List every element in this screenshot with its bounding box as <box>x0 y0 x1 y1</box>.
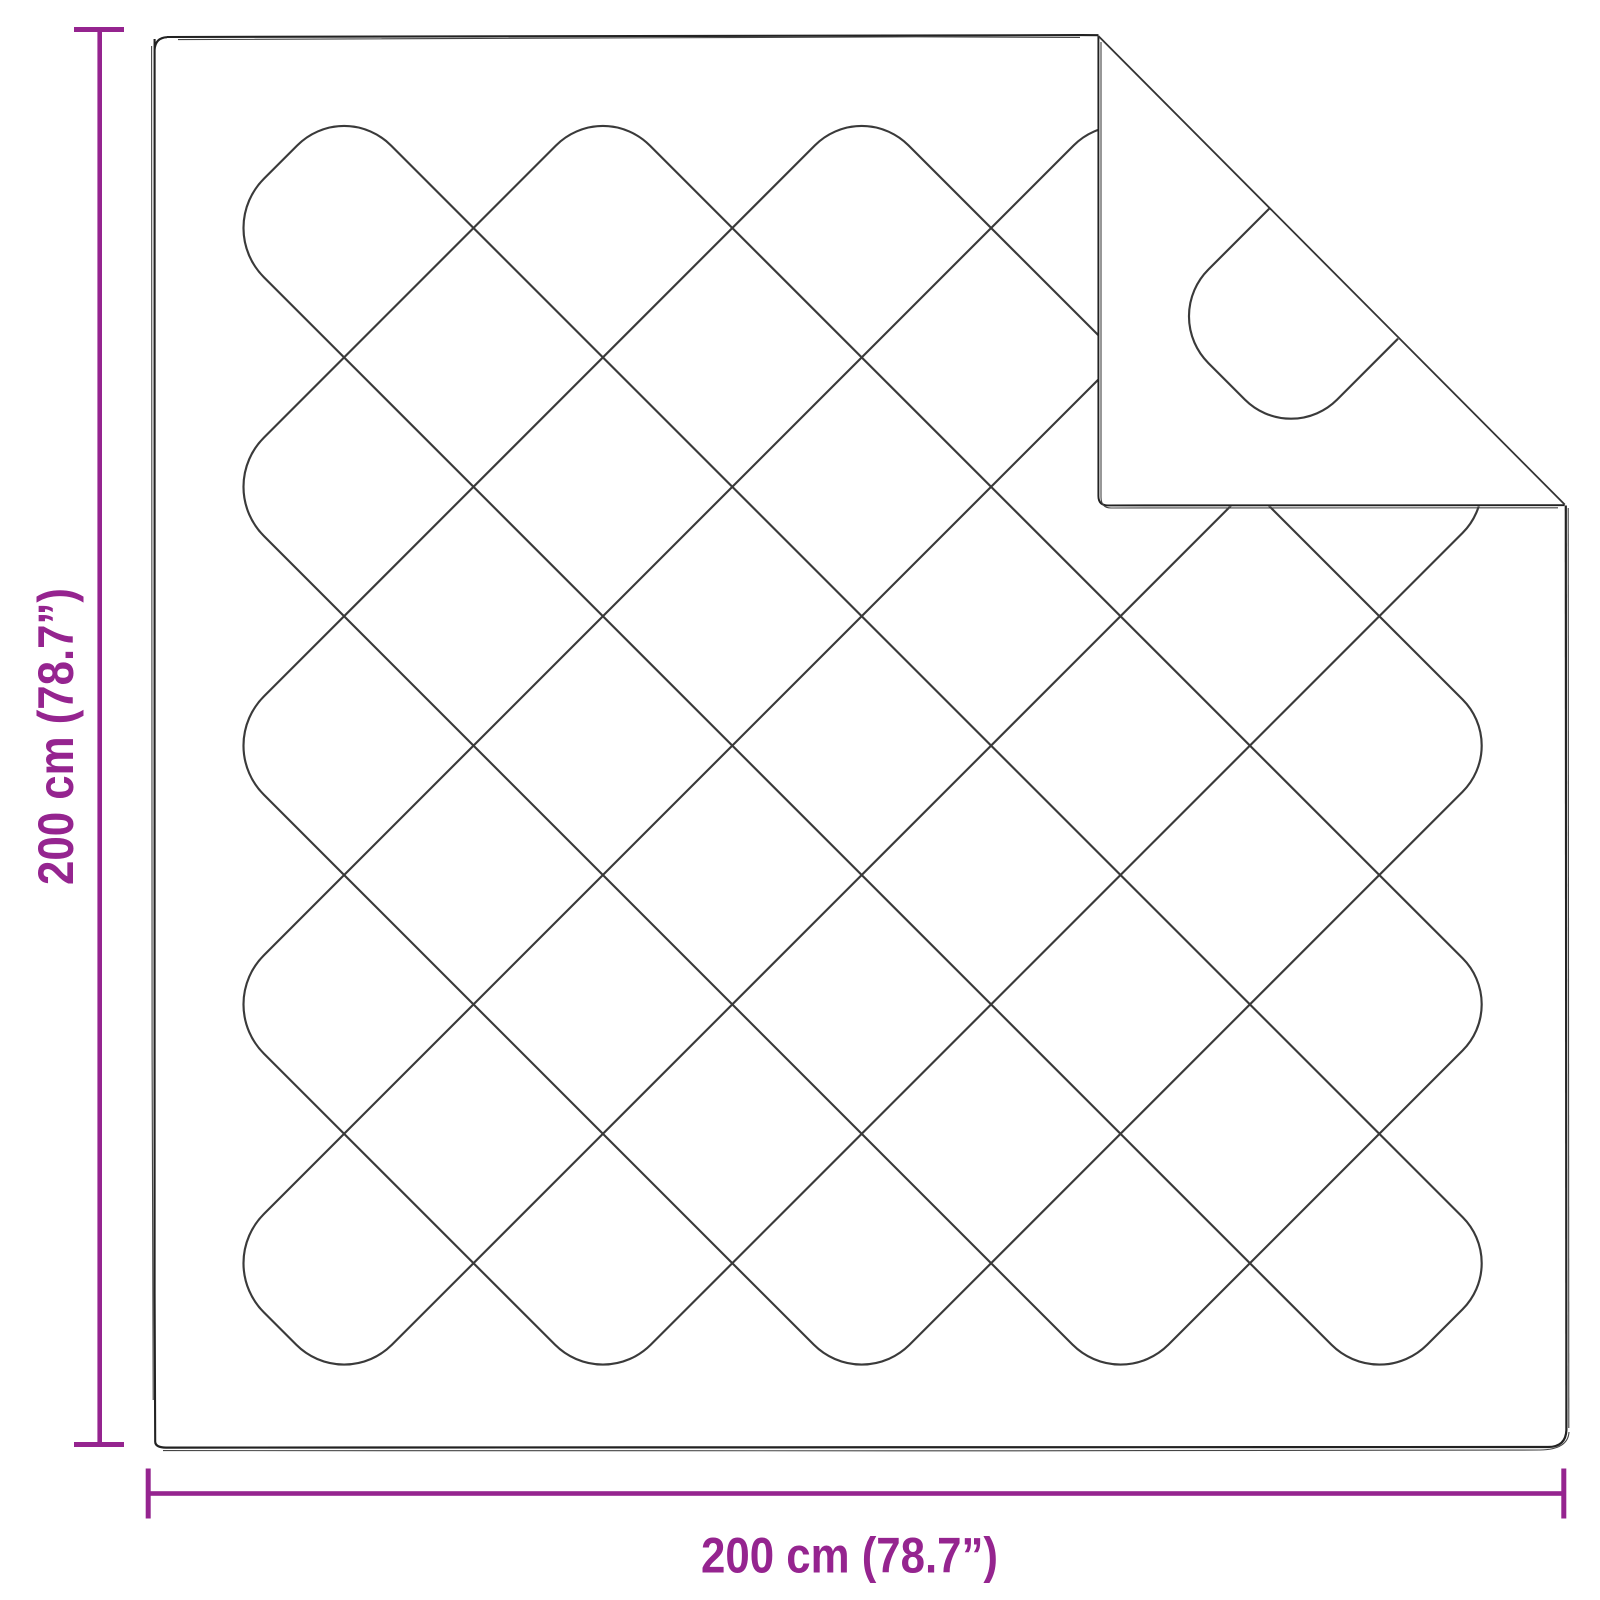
svg-text:200 cm (78.7”): 200 cm (78.7”) <box>28 588 84 885</box>
svg-text:200 cm (78.7”): 200 cm (78.7”) <box>701 1528 998 1584</box>
